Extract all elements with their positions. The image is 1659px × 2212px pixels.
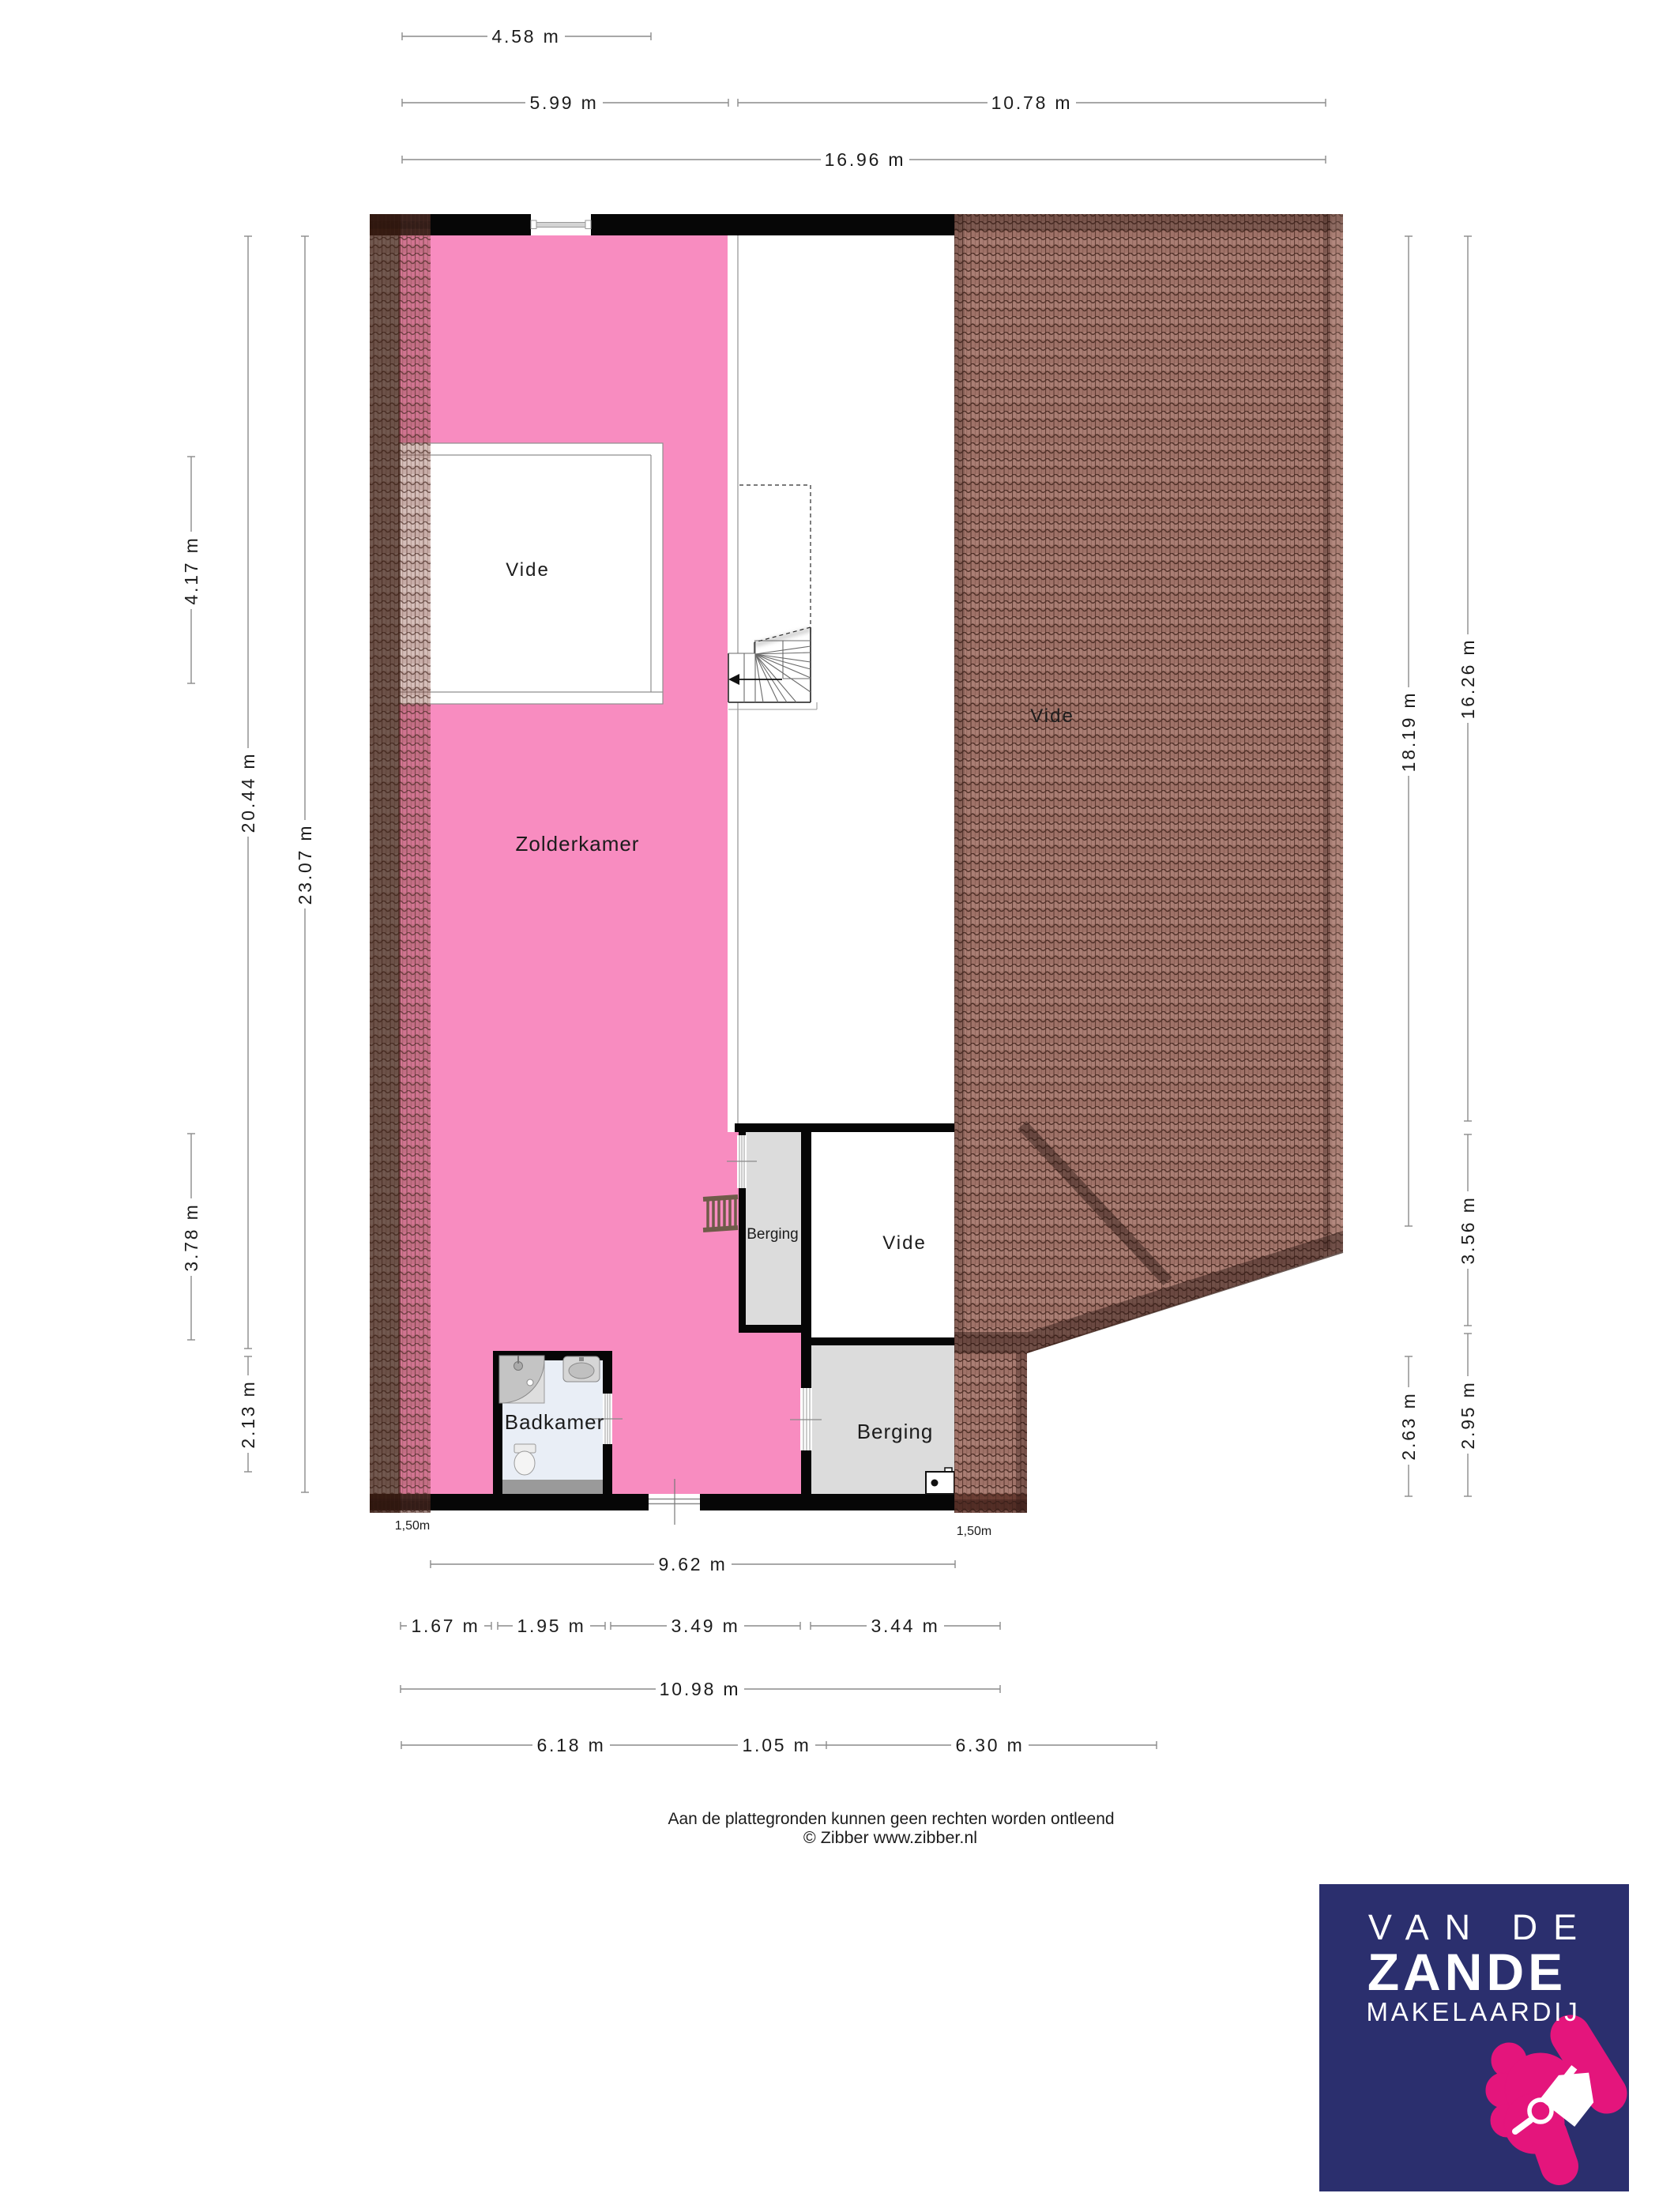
svg-text:6.30 m: 6.30 m (955, 1735, 1024, 1755)
svg-text:9.62 m: 9.62 m (658, 1554, 727, 1574)
svg-text:Vide: Vide (506, 559, 550, 581)
svg-text:Aan de plattegronden kunnen ge: Aan de plattegronden kunnen geen rechten… (668, 1810, 1114, 1828)
svg-text:ZANDE: ZANDE (1367, 1943, 1567, 2001)
svg-text:10.78 m: 10.78 m (991, 92, 1073, 113)
svg-text:1,50m: 1,50m (395, 1519, 430, 1533)
svg-text:1,50m: 1,50m (957, 1525, 991, 1538)
svg-text:3.78 m: 3.78 m (181, 1202, 201, 1271)
svg-text:VAN DE: VAN DE (1368, 1907, 1593, 1947)
svg-text:2.95 m: 2.95 m (1458, 1380, 1478, 1449)
svg-text:20.44 m: 20.44 m (238, 752, 258, 833)
svg-text:16.96 m: 16.96 m (825, 149, 906, 170)
svg-text:MAKELAARDIJ: MAKELAARDIJ (1366, 1997, 1580, 2026)
svg-text:Vide: Vide (882, 1232, 927, 1254)
svg-text:Badkamer: Badkamer (505, 1410, 605, 1434)
svg-text:1.67 m: 1.67 m (411, 1616, 480, 1636)
svg-text:18.19 m: 18.19 m (1398, 691, 1419, 773)
svg-text:23.07 m: 23.07 m (295, 824, 315, 905)
svg-text:6.18 m: 6.18 m (536, 1735, 605, 1755)
svg-text:4.17 m: 4.17 m (181, 536, 201, 604)
svg-text:2.63 m: 2.63 m (1398, 1391, 1419, 1460)
svg-text:3.44 m: 3.44 m (871, 1616, 939, 1636)
svg-text:© Zibber www.zibber.nl: © Zibber www.zibber.nl (803, 1828, 977, 1847)
svg-text:10.98 m: 10.98 m (660, 1679, 741, 1699)
svg-text:1.95 m: 1.95 m (517, 1616, 585, 1636)
svg-text:5.99 m: 5.99 m (529, 92, 598, 113)
svg-text:16.26 m: 16.26 m (1458, 638, 1478, 720)
svg-text:3.56 m: 3.56 m (1458, 1195, 1478, 1264)
svg-text:1.05 m: 1.05 m (742, 1735, 811, 1755)
svg-text:Zolderkamer: Zolderkamer (516, 832, 640, 856)
svg-text:Vide: Vide (1030, 705, 1074, 727)
svg-text:3.49 m: 3.49 m (671, 1616, 739, 1636)
svg-text:Berging: Berging (857, 1420, 934, 1443)
svg-text:2.13 m: 2.13 m (238, 1379, 258, 1448)
svg-text:Berging: Berging (747, 1226, 799, 1243)
svg-text:4.58 m: 4.58 m (491, 26, 560, 47)
